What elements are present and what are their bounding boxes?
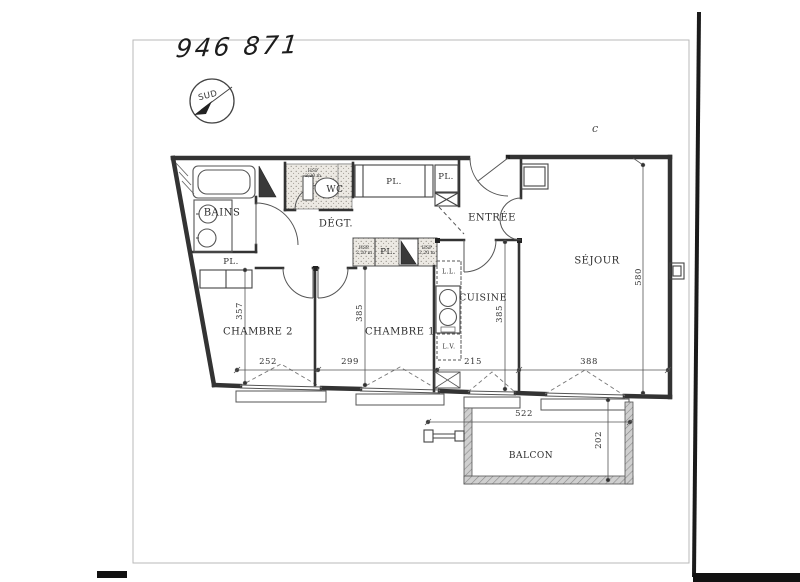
closet-label-pl-4: PL. bbox=[380, 247, 396, 257]
dim-cuisine-width: 215 bbox=[464, 357, 482, 367]
hsp-note-wc: HSP 2,20 m bbox=[305, 169, 321, 179]
dim-cuisine-depth: 385 bbox=[495, 305, 505, 323]
dim-sejour-depth: 580 bbox=[634, 268, 644, 286]
handwritten-plan-number: 946 871 bbox=[175, 30, 302, 63]
hsp-line2: 2,20 m bbox=[419, 251, 435, 256]
dim-balcon-depth: 202 bbox=[594, 431, 604, 449]
room-label-chambre1: CHAMBRE 1 bbox=[365, 327, 435, 338]
room-label-degt: DÉGT. bbox=[319, 219, 353, 230]
scanned-floorplan-page: 946 871 SUD c BAINS WC DÉGT. ENTRÉE SÉJO… bbox=[0, 0, 800, 582]
dim-balcon-width: 522 bbox=[515, 409, 533, 419]
room-label-wc: WC bbox=[326, 185, 343, 195]
bathtub bbox=[193, 166, 255, 198]
appliance-label-lv: L.V. bbox=[442, 344, 455, 351]
dim-chambre1-width: 299 bbox=[341, 357, 359, 367]
room-label-bains: BAINS bbox=[204, 208, 241, 219]
room-label-entree: ENTRÉE bbox=[468, 213, 516, 224]
room-label-sejour: SÉJOUR bbox=[574, 256, 619, 267]
closet-label-pl-3: PL. bbox=[223, 257, 239, 267]
floorplan-drawing bbox=[0, 0, 800, 582]
appliance-label-ll: L.L. bbox=[442, 269, 456, 276]
windows bbox=[236, 385, 629, 410]
stray-pen-mark: c bbox=[592, 122, 598, 135]
page-border bbox=[133, 40, 689, 563]
room-label-cuisine: CUISINE bbox=[459, 293, 507, 304]
hsp-note-closet-left: HSP 2,20 m bbox=[356, 246, 372, 256]
dim-chambre2-width: 252 bbox=[259, 357, 277, 367]
dim-chambre2-depth: 357 bbox=[235, 302, 245, 320]
balcony-pipe bbox=[424, 430, 464, 442]
dim-chambre1-depth: 385 bbox=[355, 304, 365, 322]
hsp-line2: 2,20 m bbox=[356, 251, 372, 256]
dim-sejour-width: 388 bbox=[580, 357, 598, 367]
hsp-note-closet-right: HSP 2,20 m bbox=[419, 246, 435, 256]
room-label-balcon: BALCON bbox=[509, 451, 553, 461]
closet-label-pl-2: PL. bbox=[438, 172, 454, 182]
closet-label-pl-1: PL. bbox=[386, 177, 402, 187]
hsp-line2: 2,20 m bbox=[305, 174, 321, 179]
room-label-chambre2: CHAMBRE 2 bbox=[223, 327, 293, 338]
compass-icon bbox=[190, 79, 234, 123]
